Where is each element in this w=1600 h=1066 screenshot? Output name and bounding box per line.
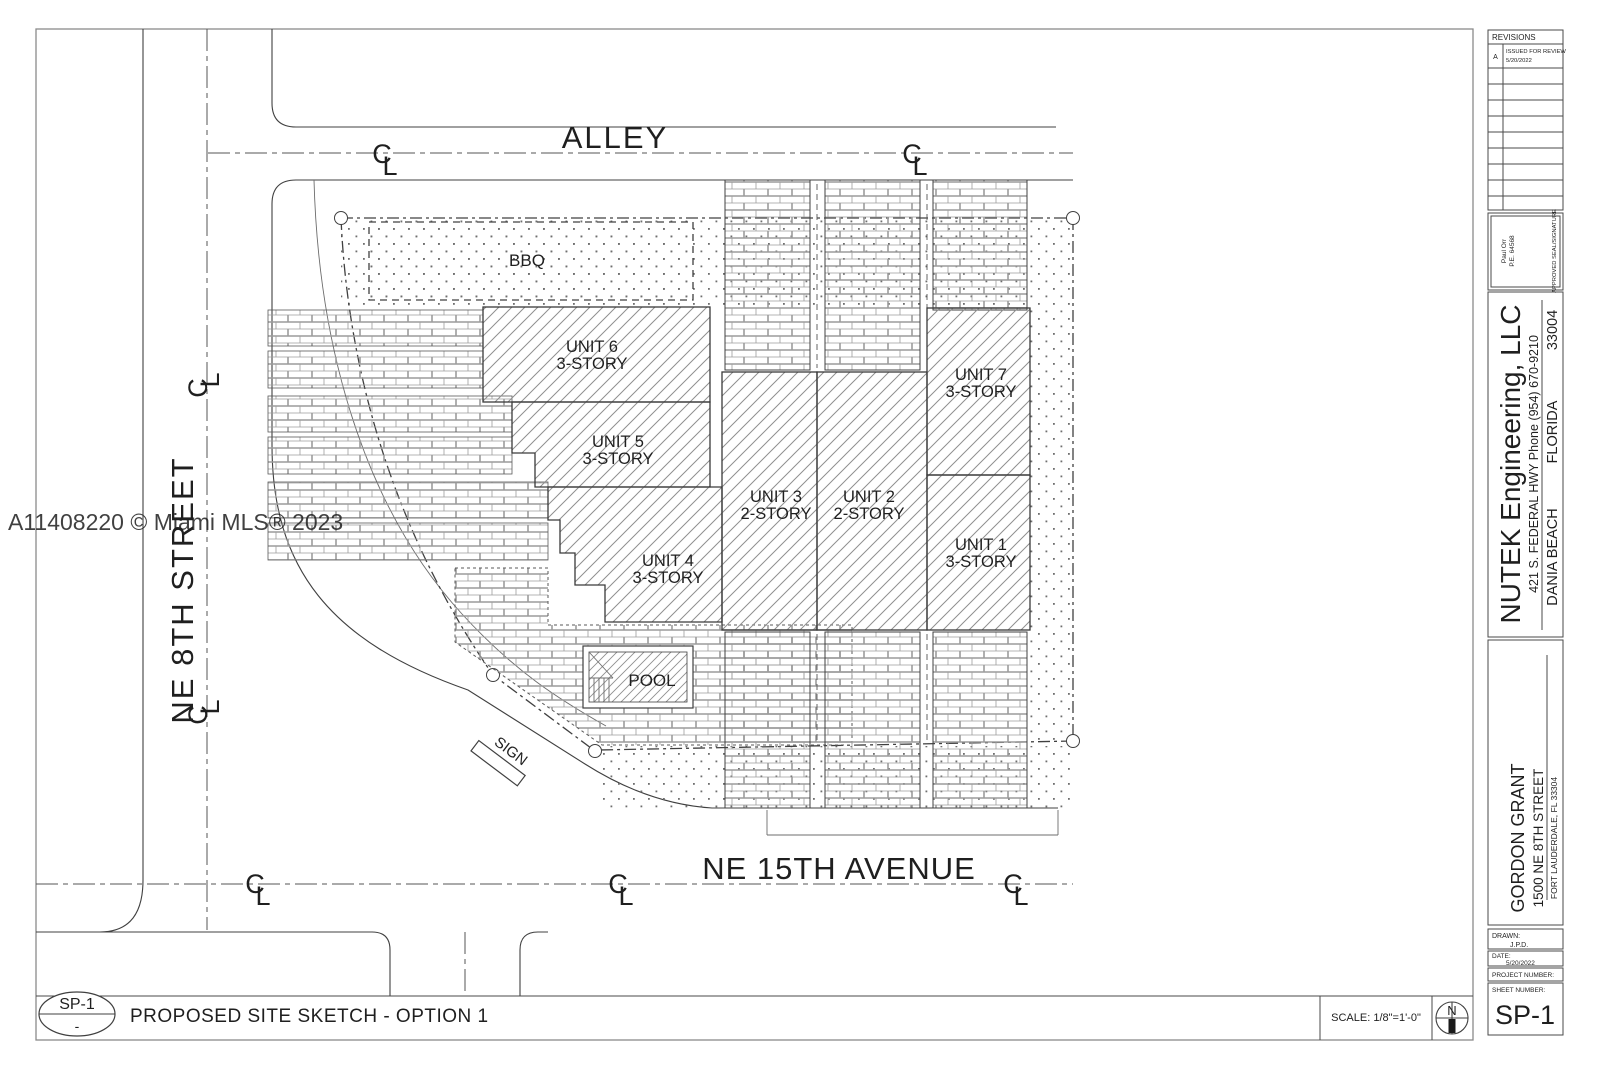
ne15th-driveway-strips <box>725 632 1027 808</box>
unit-5-label: UNIT 53-STORY <box>583 433 654 468</box>
firm-zip: 33004 <box>1545 310 1561 350</box>
title-block-panel: REVISIONS A ISSUED FOR REVIEW 5/20/2022 … <box>1488 30 1566 1035</box>
firm-name: NUTEK Engineering, LLC <box>1495 304 1526 623</box>
sheet-number-value: SP-1 <box>1495 1000 1555 1030</box>
pool-label: POOL <box>628 671 675 690</box>
south-street-east-curb <box>520 932 548 996</box>
unit-7-label: UNIT 73-STORY <box>946 366 1017 401</box>
site-plan-drawing: C L ALLEY NE 8TH STREET NE 15TH AVENUE <box>0 0 1600 1066</box>
date-label: DATE: <box>1492 953 1511 960</box>
engineer-license: P.E. 64568 <box>1509 235 1516 267</box>
unit-1-label: UNIT 13-STORY <box>946 536 1017 571</box>
sheet-ref-detail: - <box>75 1018 80 1034</box>
drawn-value: J.P.D. <box>1510 942 1528 949</box>
dimension-line <box>767 810 1058 835</box>
scale-note: SCALE: 1/8"=1'-0" <box>1331 1012 1421 1024</box>
unit-4-label: UNIT 43-STORY <box>633 552 704 587</box>
engineer-name: Paul Orr <box>1501 238 1508 263</box>
seal-caption: APPROVED SEAL/SIGNATURE <box>1552 209 1558 293</box>
date-value: 5/20/2022 <box>1506 960 1535 967</box>
project-number-label: PROJECT NUMBER: <box>1492 972 1554 979</box>
alley-street-label: ALLEY <box>562 120 669 155</box>
drawn-label: DRAWN: <box>1492 933 1520 940</box>
ne15th-street-label: NE 15TH AVENUE <box>702 851 976 886</box>
unit-4-footprint <box>548 487 722 622</box>
property-corner-marker <box>1067 735 1080 748</box>
title-bar: SP-1 - PROPOSED SITE SKETCH - OPTION 1 S… <box>36 992 1473 1040</box>
pool: POOL <box>583 646 693 708</box>
unit-2-label: UNIT 22-STORY <box>834 488 905 523</box>
ne8th-west-curb <box>36 29 143 932</box>
mls-watermark: A11408220 © Miami MLS® 2023 <box>8 509 343 535</box>
firm-state: FLORIDA <box>1545 400 1561 463</box>
revision-description: ISSUED FOR REVIEW <box>1506 49 1566 55</box>
revisions-header: REVISIONS <box>1492 33 1536 42</box>
sheet-number-label: SHEET NUMBER: <box>1492 987 1546 994</box>
project-city: FORT LAUDERDALE, FL 33304 <box>1549 777 1559 899</box>
unit-3-label: UNIT 32-STORY <box>741 488 812 523</box>
site-plan-sheet: C L ALLEY NE 8TH STREET NE 15TH AVENUE <box>0 0 1600 1066</box>
revision-letter: A <box>1493 54 1498 61</box>
property-corner-marker <box>589 745 602 758</box>
unit-6-label: UNIT 63-STORY <box>557 338 628 373</box>
firm-address: 421 S. FEDERAL HWY Phone (954) 670-9210 <box>1527 335 1541 593</box>
ne15th-south-curb <box>100 932 390 996</box>
revision-date: 5/20/2022 <box>1506 58 1532 64</box>
alley-north-curb <box>272 29 1056 127</box>
firm-box: NUTEK Engineering, LLC 421 S. FEDERAL HW… <box>1488 292 1563 637</box>
bbq-label: BBQ <box>509 251 545 270</box>
monument-sign: SIGN <box>471 725 537 785</box>
north-arrow: N <box>1436 1002 1468 1034</box>
client-name: GORDON GRANT <box>1508 763 1528 912</box>
firm-city: DANIA BEACH <box>1545 508 1561 606</box>
project-box: GORDON GRANT 1500 NE 8TH STREET FORT LAU… <box>1488 640 1563 925</box>
project-address: 1500 NE 8TH STREET <box>1531 769 1546 908</box>
property-corner-marker <box>1067 212 1080 225</box>
stamp-boxes: DRAWN: J.P.D. DATE: 5/20/2022 PROJECT NU… <box>1488 929 1563 1035</box>
drawing-title: PROPOSED SITE SKETCH - OPTION 1 <box>130 1006 489 1027</box>
ne8th-street-label: NE 8TH STREET <box>165 456 200 723</box>
seal-box: Paul Orr P.E. 64568 APPROVED SEAL/SIGNAT… <box>1488 209 1563 293</box>
sheet-ref-text: SP-1 <box>59 996 95 1013</box>
property-corner-marker <box>335 212 348 225</box>
revisions-table: REVISIONS A ISSUED FOR REVIEW 5/20/2022 <box>1488 30 1566 210</box>
north-label: N <box>1447 1003 1456 1018</box>
